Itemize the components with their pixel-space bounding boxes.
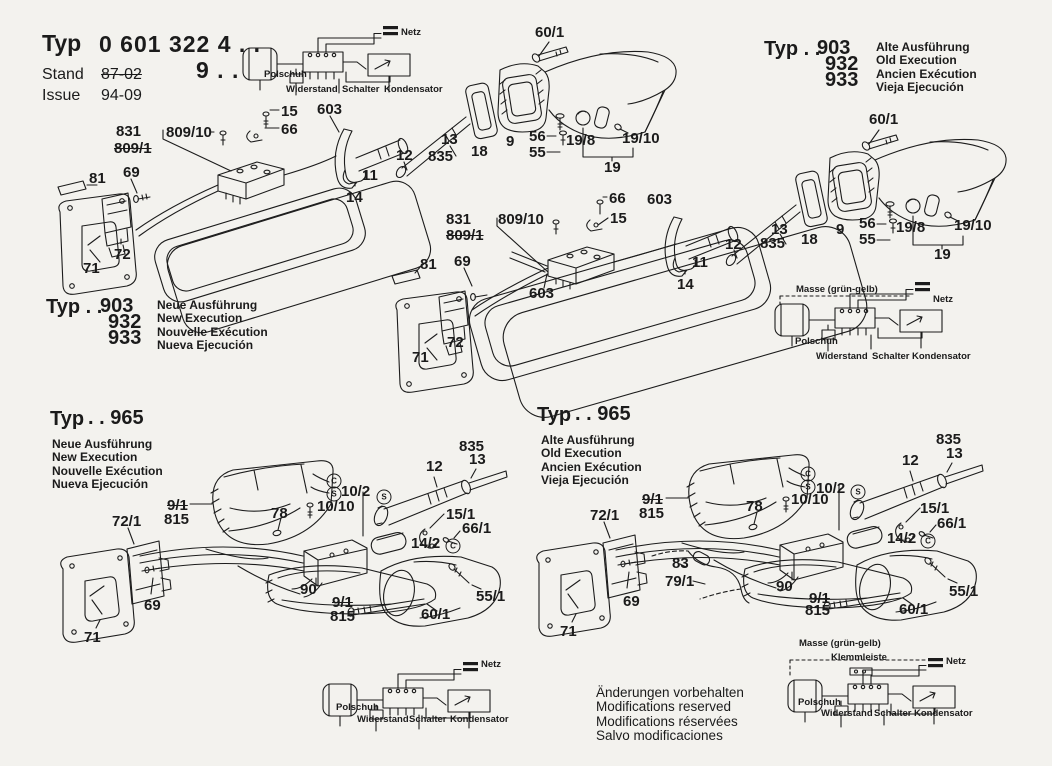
part-number-label: 81	[420, 257, 437, 272]
wiring-label-kondensator: Kondensator	[384, 85, 443, 95]
typ-value-2: 9 . .	[196, 57, 239, 84]
part-number-label: 11	[362, 168, 378, 183]
part-number-label: 603	[317, 102, 342, 117]
wiring-label-netz: Netz	[933, 295, 953, 305]
variant-line: Nueva Ejecución	[52, 478, 163, 491]
stand-label: Stand	[42, 66, 84, 84]
part-number-label: 19/8	[896, 220, 925, 235]
footer-line: Modifications reserved	[596, 700, 744, 714]
part-number-label: 72/1	[112, 514, 141, 529]
part-number-label: 55/1	[949, 584, 978, 599]
issue-value: 94-09	[101, 87, 142, 105]
part-number-label: 60/1	[421, 607, 450, 622]
part-number-label: 60/1	[869, 112, 898, 127]
part-number-label: 14/2	[887, 531, 916, 546]
wiring-label-klemmleiste: Klemmleiste	[831, 653, 887, 663]
part-number-label: 19/8	[566, 133, 595, 148]
type-code: 933	[108, 328, 141, 348]
part-number-label: 13	[946, 446, 963, 461]
part-number-label: 815	[805, 603, 830, 618]
part-number-label: 815	[330, 609, 355, 624]
part-number-label: 66/1	[462, 521, 491, 536]
wiring-label-schalter: Schalter	[342, 85, 380, 95]
part-number-label: 71	[412, 350, 429, 365]
variant-marker: C	[921, 534, 936, 549]
part-number-label: 55	[859, 232, 876, 247]
variant-marker: S	[851, 485, 866, 500]
part-number-label: 815	[164, 512, 189, 527]
part-number-label: 81	[89, 171, 106, 186]
footer-line: Modifications réservées	[596, 715, 744, 729]
variant-lines: Alte Ausführung Old Execution Ancien Exé…	[876, 41, 977, 95]
wiring-label-schalter: Schalter	[872, 352, 910, 362]
part-number-label: 79/1	[665, 574, 694, 589]
part-number-label: 15/1	[920, 501, 949, 516]
type-code: . . 965	[575, 404, 631, 424]
part-number-label: 18	[801, 232, 818, 247]
footer-line: Salvo modificaciones	[596, 729, 744, 743]
variant-line: Neue Ausführung	[52, 438, 163, 451]
part-number-label: 809/1	[446, 228, 484, 243]
footer-line: Änderungen vorbehalten	[596, 686, 744, 700]
part-number-label: 13	[469, 452, 486, 467]
part-number-label: 809/10	[498, 212, 544, 227]
wiring-label-netz: Netz	[946, 657, 966, 667]
variant-line: Nouvelle Exécution	[52, 465, 163, 478]
part-number-label: 831	[116, 124, 141, 139]
part-number-label: 72	[447, 335, 464, 350]
part-number-label: 809/10	[166, 125, 212, 140]
part-number-label: 815	[639, 506, 664, 521]
variant-line: New Execution	[157, 312, 268, 325]
part-number-label: 90	[776, 579, 793, 594]
assembly-motor-housing-top	[335, 42, 676, 188]
part-number-label: 71	[560, 624, 577, 639]
variant-line: New Execution	[52, 451, 163, 464]
typ-prefix: Typ	[50, 408, 84, 431]
part-number-label: 66	[609, 191, 626, 206]
typ-value: 0 601 322 4 . .	[99, 31, 261, 58]
variant-line: Vieja Ejecución	[876, 81, 977, 94]
part-number-label: 831	[446, 212, 471, 227]
part-number-label: 71	[84, 630, 101, 645]
part-number-label: 19/10	[622, 131, 660, 146]
stand-value: 87-02	[101, 66, 142, 84]
part-number-label: 19	[934, 247, 951, 262]
part-number-label: 10/2	[341, 484, 370, 499]
wiring-label-netz: Netz	[481, 660, 501, 670]
type-code: 933	[825, 70, 858, 90]
part-number-label: 72/1	[590, 508, 619, 523]
part-number-label: 15	[610, 211, 627, 226]
wiring-label-polschuh: Polschuh	[798, 698, 841, 708]
part-number-label: 90	[300, 582, 317, 597]
part-number-label: 603	[529, 286, 554, 301]
terminal-strip	[850, 668, 872, 675]
part-number-label: 72	[114, 247, 131, 262]
variant-line: Old Execution	[541, 447, 642, 460]
variant-line: Alte Ausführung	[541, 434, 642, 447]
part-number-label: 835	[760, 236, 785, 251]
part-number-label: 19	[604, 160, 621, 175]
part-number-label: 12	[426, 459, 443, 474]
modifications-note: Änderungen vorbehalten Modifications res…	[596, 686, 744, 744]
variant-line: Vieja Ejecución	[541, 474, 642, 487]
part-number-label: 60/1	[899, 602, 928, 617]
part-number-label: 83	[672, 556, 689, 571]
wiring-label-polschuh: Polschuh	[795, 337, 838, 347]
part-number-label: 71	[83, 261, 100, 276]
wiring-label-masse: Masse (grün-gelb)	[799, 639, 881, 649]
part-number-label: 12	[725, 237, 742, 252]
variant-line: Ancien Exécution	[876, 68, 977, 81]
part-number-label: 9	[836, 222, 844, 237]
wiring-label-schalter: Schalter	[409, 715, 447, 725]
assembly-motor-housing-right	[665, 130, 1006, 276]
part-number-label: 19/10	[954, 218, 992, 233]
variant-marker: C	[446, 539, 461, 554]
part-number-label: 66/1	[937, 516, 966, 531]
wiring-label-widerstand: Widerstand	[286, 85, 338, 95]
wiring-label-masse: Masse (grün-gelb)	[796, 285, 878, 295]
typ-prefix: Typ	[537, 404, 571, 427]
part-number-label: 12	[902, 453, 919, 468]
variant-line: Old Execution	[876, 54, 977, 67]
wiring-label-widerstand: Widerstand	[821, 709, 873, 719]
wiring-label-schalter: Schalter	[874, 709, 912, 719]
part-number-label: 15	[281, 104, 298, 119]
part-number-label: 56	[529, 129, 546, 144]
part-number-label: 56	[859, 216, 876, 231]
part-number-label: 835	[428, 149, 453, 164]
part-number-label: 78	[271, 506, 288, 521]
part-number-label: 18	[471, 144, 488, 159]
part-number-label: 603	[647, 192, 672, 207]
variant-marker: S	[327, 487, 342, 502]
part-number-label: 12	[396, 148, 413, 163]
variant-line: Alte Ausführung	[876, 41, 977, 54]
wiring-label-widerstand: Widerstand	[357, 715, 409, 725]
variant-lines: Neue Ausführung New Execution Nouvelle E…	[157, 299, 268, 353]
part-number-label: 69	[123, 165, 140, 180]
parts-diagram-page: { "title_block": { "typ_label": "Typ", "…	[0, 0, 1052, 766]
variant-line: Nouvelle Exécution	[157, 326, 268, 339]
wiring-label-kondensator: Kondensator	[914, 709, 973, 719]
part-number-label: 55/1	[476, 589, 505, 604]
wiring-label-kondensator: Kondensator	[912, 352, 971, 362]
part-number-label: 9	[506, 134, 514, 149]
wiring-label-polschuh: Polschuh	[264, 70, 307, 80]
variant-marker: S	[801, 480, 816, 495]
typ-prefix: Typ . .	[46, 296, 102, 319]
wiring-label-widerstand: Widerstand	[816, 352, 868, 362]
part-number-label: 69	[623, 594, 640, 609]
part-number-label: 809/1	[114, 141, 152, 156]
variant-line: Ancien Exécution	[541, 461, 642, 474]
part-number-label: 66	[281, 122, 298, 137]
type-code: . . 965	[88, 408, 144, 428]
variant-line: Neue Ausführung	[157, 299, 268, 312]
part-number-label: 14	[677, 277, 694, 292]
wiring-label-polschuh: Polschuh	[336, 703, 379, 713]
part-number-label: 60/1	[535, 25, 564, 40]
variant-line: Nueva Ejecución	[157, 339, 268, 352]
variant-lines: Alte Ausführung Old Execution Ancien Exé…	[541, 434, 642, 488]
variant-marker: S	[377, 490, 392, 505]
part-number-label: 14	[346, 190, 363, 205]
typ-prefix: Typ . .	[764, 38, 820, 61]
part-number-label: 13	[441, 132, 458, 147]
typ-label: Typ	[42, 30, 81, 57]
wiring-label-netz: Netz	[401, 28, 421, 38]
part-number-label: 14/2	[411, 536, 440, 551]
part-number-label: 11	[692, 255, 708, 270]
wiring-label-kondensator: Kondensator	[450, 715, 509, 725]
issue-label: Issue	[42, 87, 80, 105]
part-number-label: 69	[454, 254, 471, 269]
part-number-label: 55	[529, 145, 546, 160]
part-number-label: 69	[144, 598, 161, 613]
part-number-label: 78	[746, 499, 763, 514]
variant-lines: Neue Ausführung New Execution Nouvelle E…	[52, 438, 163, 492]
